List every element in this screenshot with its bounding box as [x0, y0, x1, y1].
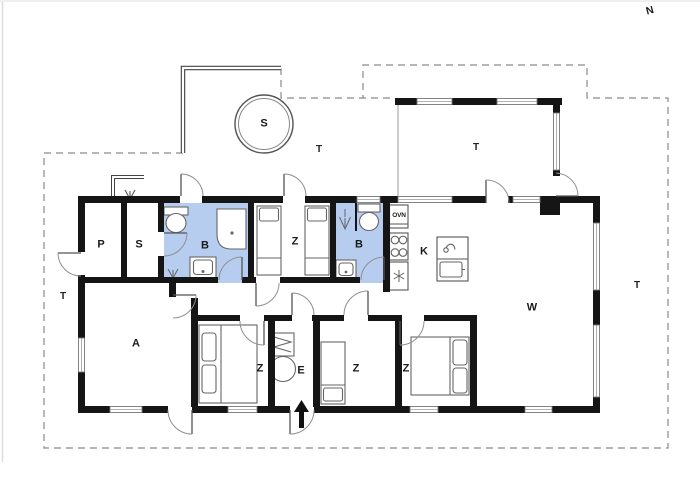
- terrace-label-north: T: [316, 145, 322, 155]
- room-label-p: P: [97, 240, 104, 251]
- floor-plan-drawing: [0, 0, 700, 500]
- room-label-bedroom-1: Z: [292, 237, 299, 248]
- room-label-bedroom-3: Z: [353, 364, 360, 375]
- room-label-activity: A: [132, 339, 140, 350]
- room-label-bedroom-2: Z: [257, 364, 264, 375]
- room-label-entry: E: [297, 366, 304, 377]
- room-label-bedroom-4: Z: [403, 364, 410, 375]
- room-label-kitchen: K: [420, 247, 428, 258]
- room-label-sauna: S: [135, 240, 142, 251]
- spa-label: S: [260, 119, 267, 130]
- outdoor-shower: [113, 177, 144, 199]
- room-label-bath-1: B: [201, 241, 209, 252]
- terrace-label-east: T: [634, 281, 640, 291]
- room-label-bath-2: B: [355, 240, 363, 251]
- oven-label: OVN: [392, 213, 406, 220]
- room-label-living: W: [527, 303, 537, 314]
- terrace-label-west: T: [60, 292, 66, 302]
- terrace-label-covered: T: [473, 143, 479, 153]
- floor-plan: P S B Z B K W A Z E Z Z T T T T S OVN N: [0, 0, 700, 500]
- entrance-arrow: [294, 400, 309, 428]
